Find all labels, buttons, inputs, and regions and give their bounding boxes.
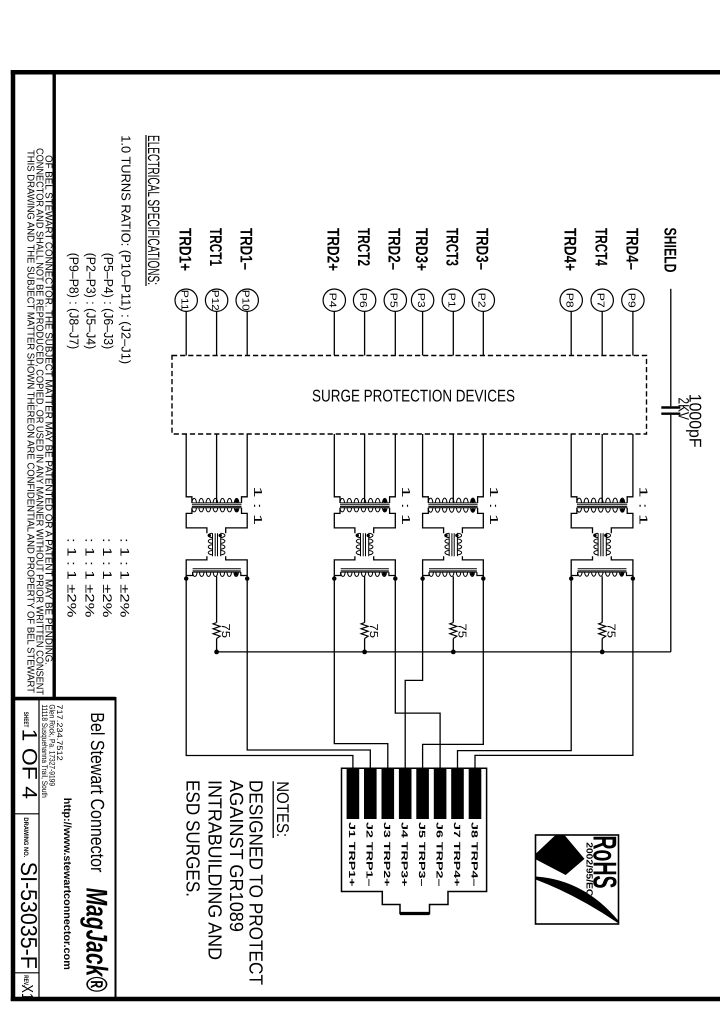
svg-text:1 : 1: 1 : 1 [637,487,649,526]
svg-text:J5 TRP3–: J5 TRP3– [417,822,427,887]
svg-text:J2 TRP1–: J2 TRP1– [365,822,375,887]
svg-text:P5: P5 [388,293,399,309]
svg-text:1 : 1: 1 : 1 [399,487,411,526]
svg-text:: 1 : 1 ±2%: : 1 : 1 ±2% [100,538,114,618]
svg-text:P3: P3 [415,293,426,309]
svg-text:SHEET: SHEET [22,712,29,728]
svg-text:J4 TRP3+: J4 TRP3+ [400,822,410,887]
svg-text:1 : 1: 1 : 1 [487,487,499,526]
svg-text:MagJack®: MagJack® [80,888,113,993]
svg-text:: 1 : 1 ±2%: : 1 : 1 ±2% [82,538,96,618]
svg-text:(P5–P4) : (J6–J3): (P5–P4) : (J6–J3) [101,253,116,350]
svg-text:DESIGNED TO PROTECT: DESIGNED TO PROTECT [245,780,266,985]
svg-text:TRD4+: TRD4+ [561,228,580,271]
svg-text:75: 75 [456,624,468,639]
svg-text:TRD1+: TRD1+ [176,228,195,271]
svg-text:TRCT1: TRCT1 [206,228,225,266]
svg-text:TRD4–: TRD4– [622,228,641,270]
svg-text:P11: P11 [179,290,190,312]
svg-text:P9: P9 [625,293,636,309]
svg-text:P1: P1 [446,293,457,309]
svg-text:J8 TRP4–: J8 TRP4– [469,822,479,887]
svg-text:SHIELD: SHIELD [660,228,679,273]
svg-text:TRCT2: TRCT2 [354,228,373,266]
svg-text:J7 TRP4+: J7 TRP4+ [452,822,462,887]
svg-text:75: 75 [219,624,231,639]
svg-text:NOTES:: NOTES: [273,781,292,837]
svg-text:INTRABUILDING AND: INTRABUILDING AND [203,780,224,960]
svg-text:TRD2+: TRD2+ [324,228,343,271]
svg-text:TRCT3: TRCT3 [443,228,462,266]
svg-text:Bel Stewart Connector: Bel Stewart Connector [86,712,107,873]
svg-text:http://www.stewartconnector.co: http://www.stewartconnector.com [61,798,73,970]
svg-text:1 : 1: 1 : 1 [251,487,263,526]
svg-text:TRD3–: TRD3– [473,228,492,270]
svg-text:ESD SURGES.: ESD SURGES. [182,780,203,897]
svg-text:2KV: 2KV [675,398,692,421]
svg-text:SURGE PROTECTION DEVICES: SURGE PROTECTION DEVICES [312,387,515,406]
svg-text:P12: P12 [209,290,220,312]
svg-text:J1 TRP1+: J1 TRP1+ [347,822,357,887]
svg-text:1 OF 4: 1 OF 4 [18,729,41,800]
svg-text:SI-53035-F: SI-53035-F [16,862,42,969]
svg-text:OF BEL STEWART CONNECTOR. THE: OF BEL STEWART CONNECTOR. THE SUBJECT MA… [42,155,53,665]
svg-text:TRCT4: TRCT4 [592,228,611,266]
svg-text:1.0 TURNS RATIO: (P10–P11) :: 1.0 TURNS RATIO: (P10–P11) : (J2–J1) [119,135,134,364]
svg-text:(P9–P8) : (J8–J7): (P9–P8) : (J8–J7) [67,253,82,350]
svg-text:: 1 : 1 ±2%: : 1 : 1 ±2% [118,538,132,618]
svg-text:: 1 : 1 ±2%: : 1 : 1 ±2% [65,538,79,618]
svg-text:2002/95/EC: 2002/95/EC [585,842,595,897]
svg-text:TRD3+: TRD3+ [412,228,431,271]
svg-text:TRD1–: TRD1– [237,228,256,270]
svg-text:(P2–P3) : (J5–J4): (P2–P3) : (J5–J4) [84,253,99,350]
svg-text:X1: X1 [18,985,35,1001]
svg-text:P10: P10 [240,290,251,312]
svg-text:DRAWING NO.: DRAWING NO. [22,817,29,857]
svg-text:75: 75 [367,624,379,639]
svg-text:P2: P2 [476,293,487,309]
svg-text:P6: P6 [357,293,368,309]
svg-text:TRD2–: TRD2– [385,228,404,270]
svg-text:J6 TRP2–: J6 TRP2– [434,822,444,887]
svg-text:P4: P4 [327,293,338,309]
svg-text:AGAINST GR1089: AGAINST GR1089 [225,780,246,932]
svg-text:J3 TRP2+: J3 TRP2+ [382,822,392,887]
svg-text:717.234.7512: 717.234.7512 [55,704,64,761]
svg-text:75: 75 [605,624,617,639]
svg-text:P7: P7 [595,293,606,309]
svg-text:P8: P8 [564,293,575,309]
